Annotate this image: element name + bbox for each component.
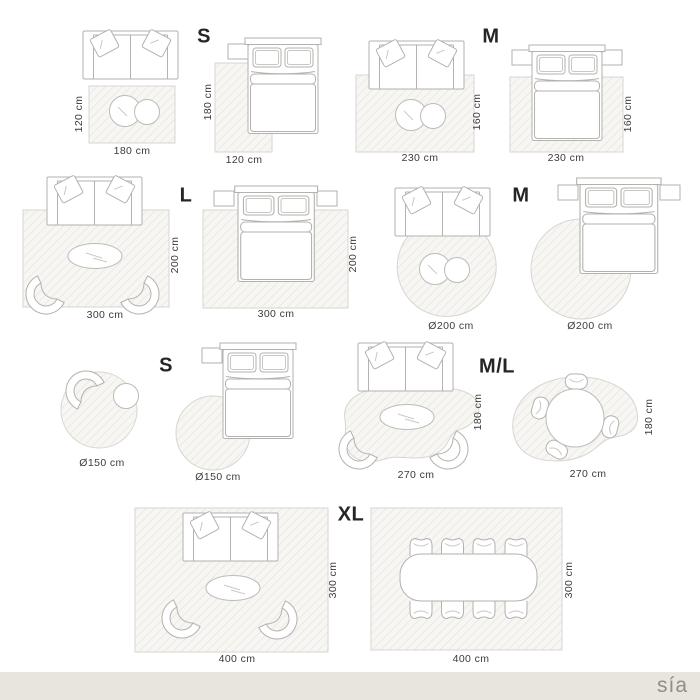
oval-coffee-table — [380, 405, 434, 430]
rug-depth-label: 180 cm — [472, 394, 484, 431]
bed-topview — [577, 178, 661, 274]
size-label-ml: M/L — [479, 356, 515, 379]
rug-depth-label: 180 cm — [202, 84, 214, 121]
nightstand — [317, 191, 337, 206]
coffee-table-pair — [420, 254, 470, 285]
nightstand — [214, 191, 234, 206]
diagram-m-round-bedroom: Ø200 cm — [530, 170, 690, 335]
rug-width-label: 230 cm — [402, 152, 439, 164]
coffee-table-pair — [110, 96, 160, 127]
coffee-table-pair — [396, 100, 446, 131]
bed-topview — [220, 343, 296, 439]
dining-chair — [505, 601, 527, 619]
rug-width-label: 230 cm — [548, 152, 585, 164]
diagram-s-round-armchair: Ø150 cm — [55, 355, 170, 475]
diagram-xl-dining: 400 cm 300 cm — [360, 500, 580, 668]
rug-width-label: 180 cm — [114, 145, 151, 157]
diagram-s-round-bedroom: Ø150 cm — [175, 340, 300, 485]
sofa-topview — [395, 186, 490, 236]
dining-chair — [473, 601, 495, 619]
nightstand — [228, 44, 248, 59]
dining-chair — [473, 539, 495, 557]
dining-chair — [442, 539, 464, 557]
rug-diameter-label: Ø150 cm — [195, 471, 240, 483]
sofa-topview — [183, 511, 278, 561]
diagram-xl-living: 400 cm 300 cm — [120, 500, 350, 668]
rug-width-label: 300 cm — [258, 308, 295, 320]
sofa-topview — [83, 29, 178, 79]
rug-diameter-label: Ø200 cm — [567, 320, 612, 332]
rug-depth-label: 160 cm — [622, 96, 634, 133]
dining-chair — [442, 601, 464, 619]
rug-depth-label: 120 cm — [73, 96, 85, 133]
rug-depth-label: 300 cm — [327, 562, 339, 599]
size-label-l: L — [180, 185, 193, 208]
rug-depth-label: 200 cm — [347, 236, 359, 273]
sofa-topview — [369, 39, 464, 89]
dining-chair — [505, 539, 527, 557]
rug-size-guide: 180 cm 120 cm 120 cm 180 cm 230 cm 160 c… — [0, 0, 700, 700]
diagram-m-round-living: Ø200 cm — [385, 170, 510, 335]
nightstand — [202, 348, 222, 363]
footer-bar: sía — [0, 672, 700, 700]
diagram-s-bedroom: 120 cm 180 cm — [195, 28, 325, 168]
diagram-m-bedroom: 230 cm 160 cm — [505, 40, 640, 165]
diagram-s-living: 180 cm 120 cm — [70, 28, 185, 160]
rug-depth-label: 200 cm — [169, 237, 181, 274]
dining-chair — [410, 539, 432, 557]
oval-coffee-table — [68, 244, 122, 269]
bed-topview — [245, 38, 321, 134]
diagram-ml-organic-living: 270 cm 180 cm — [335, 338, 485, 483]
sofa-topview — [47, 175, 142, 225]
side-table — [114, 384, 139, 409]
rug-diameter-label: Ø200 cm — [428, 320, 473, 332]
rug-width-label: 270 cm — [398, 469, 435, 481]
size-label-xl: XL — [338, 504, 365, 527]
size-label-m-2: M — [512, 185, 529, 208]
diagram-ml-organic-dining: 270 cm 180 cm — [505, 360, 660, 485]
nightstand — [660, 185, 680, 200]
dining-chair — [565, 374, 588, 390]
diagram-l-bedroom: 300 cm 200 cm — [195, 178, 360, 323]
bed-topview — [529, 45, 605, 141]
oval-coffee-table — [206, 576, 260, 601]
sofa-topview — [358, 341, 453, 391]
size-label-m-1: M — [482, 26, 499, 49]
rug-width-label: 300 cm — [87, 309, 124, 321]
rug-width-label: 270 cm — [570, 468, 607, 480]
rectangular-dining-table — [400, 554, 537, 601]
rug-width-label: 120 cm — [226, 154, 263, 166]
diagram-m-living: 230 cm 160 cm — [350, 35, 490, 165]
bed-topview — [235, 186, 318, 282]
brand-logo: sía — [657, 674, 688, 698]
rug-width-label: 400 cm — [219, 653, 256, 665]
rug-depth-label: 160 cm — [471, 94, 483, 131]
size-label-s-2: S — [159, 355, 173, 378]
nightstand — [602, 50, 622, 65]
rug-diameter-label: Ø150 cm — [79, 457, 124, 469]
round-dining-table — [546, 389, 604, 447]
diagram-l-living: 300 cm 200 cm — [15, 172, 185, 322]
size-label-s-1: S — [197, 26, 211, 49]
nightstand — [512, 50, 532, 65]
rug-width-label: 400 cm — [453, 653, 490, 665]
dining-chair — [410, 601, 432, 619]
nightstand — [558, 185, 578, 200]
rug-depth-label: 300 cm — [563, 562, 575, 599]
rug-depth-label: 180 cm — [643, 399, 655, 436]
